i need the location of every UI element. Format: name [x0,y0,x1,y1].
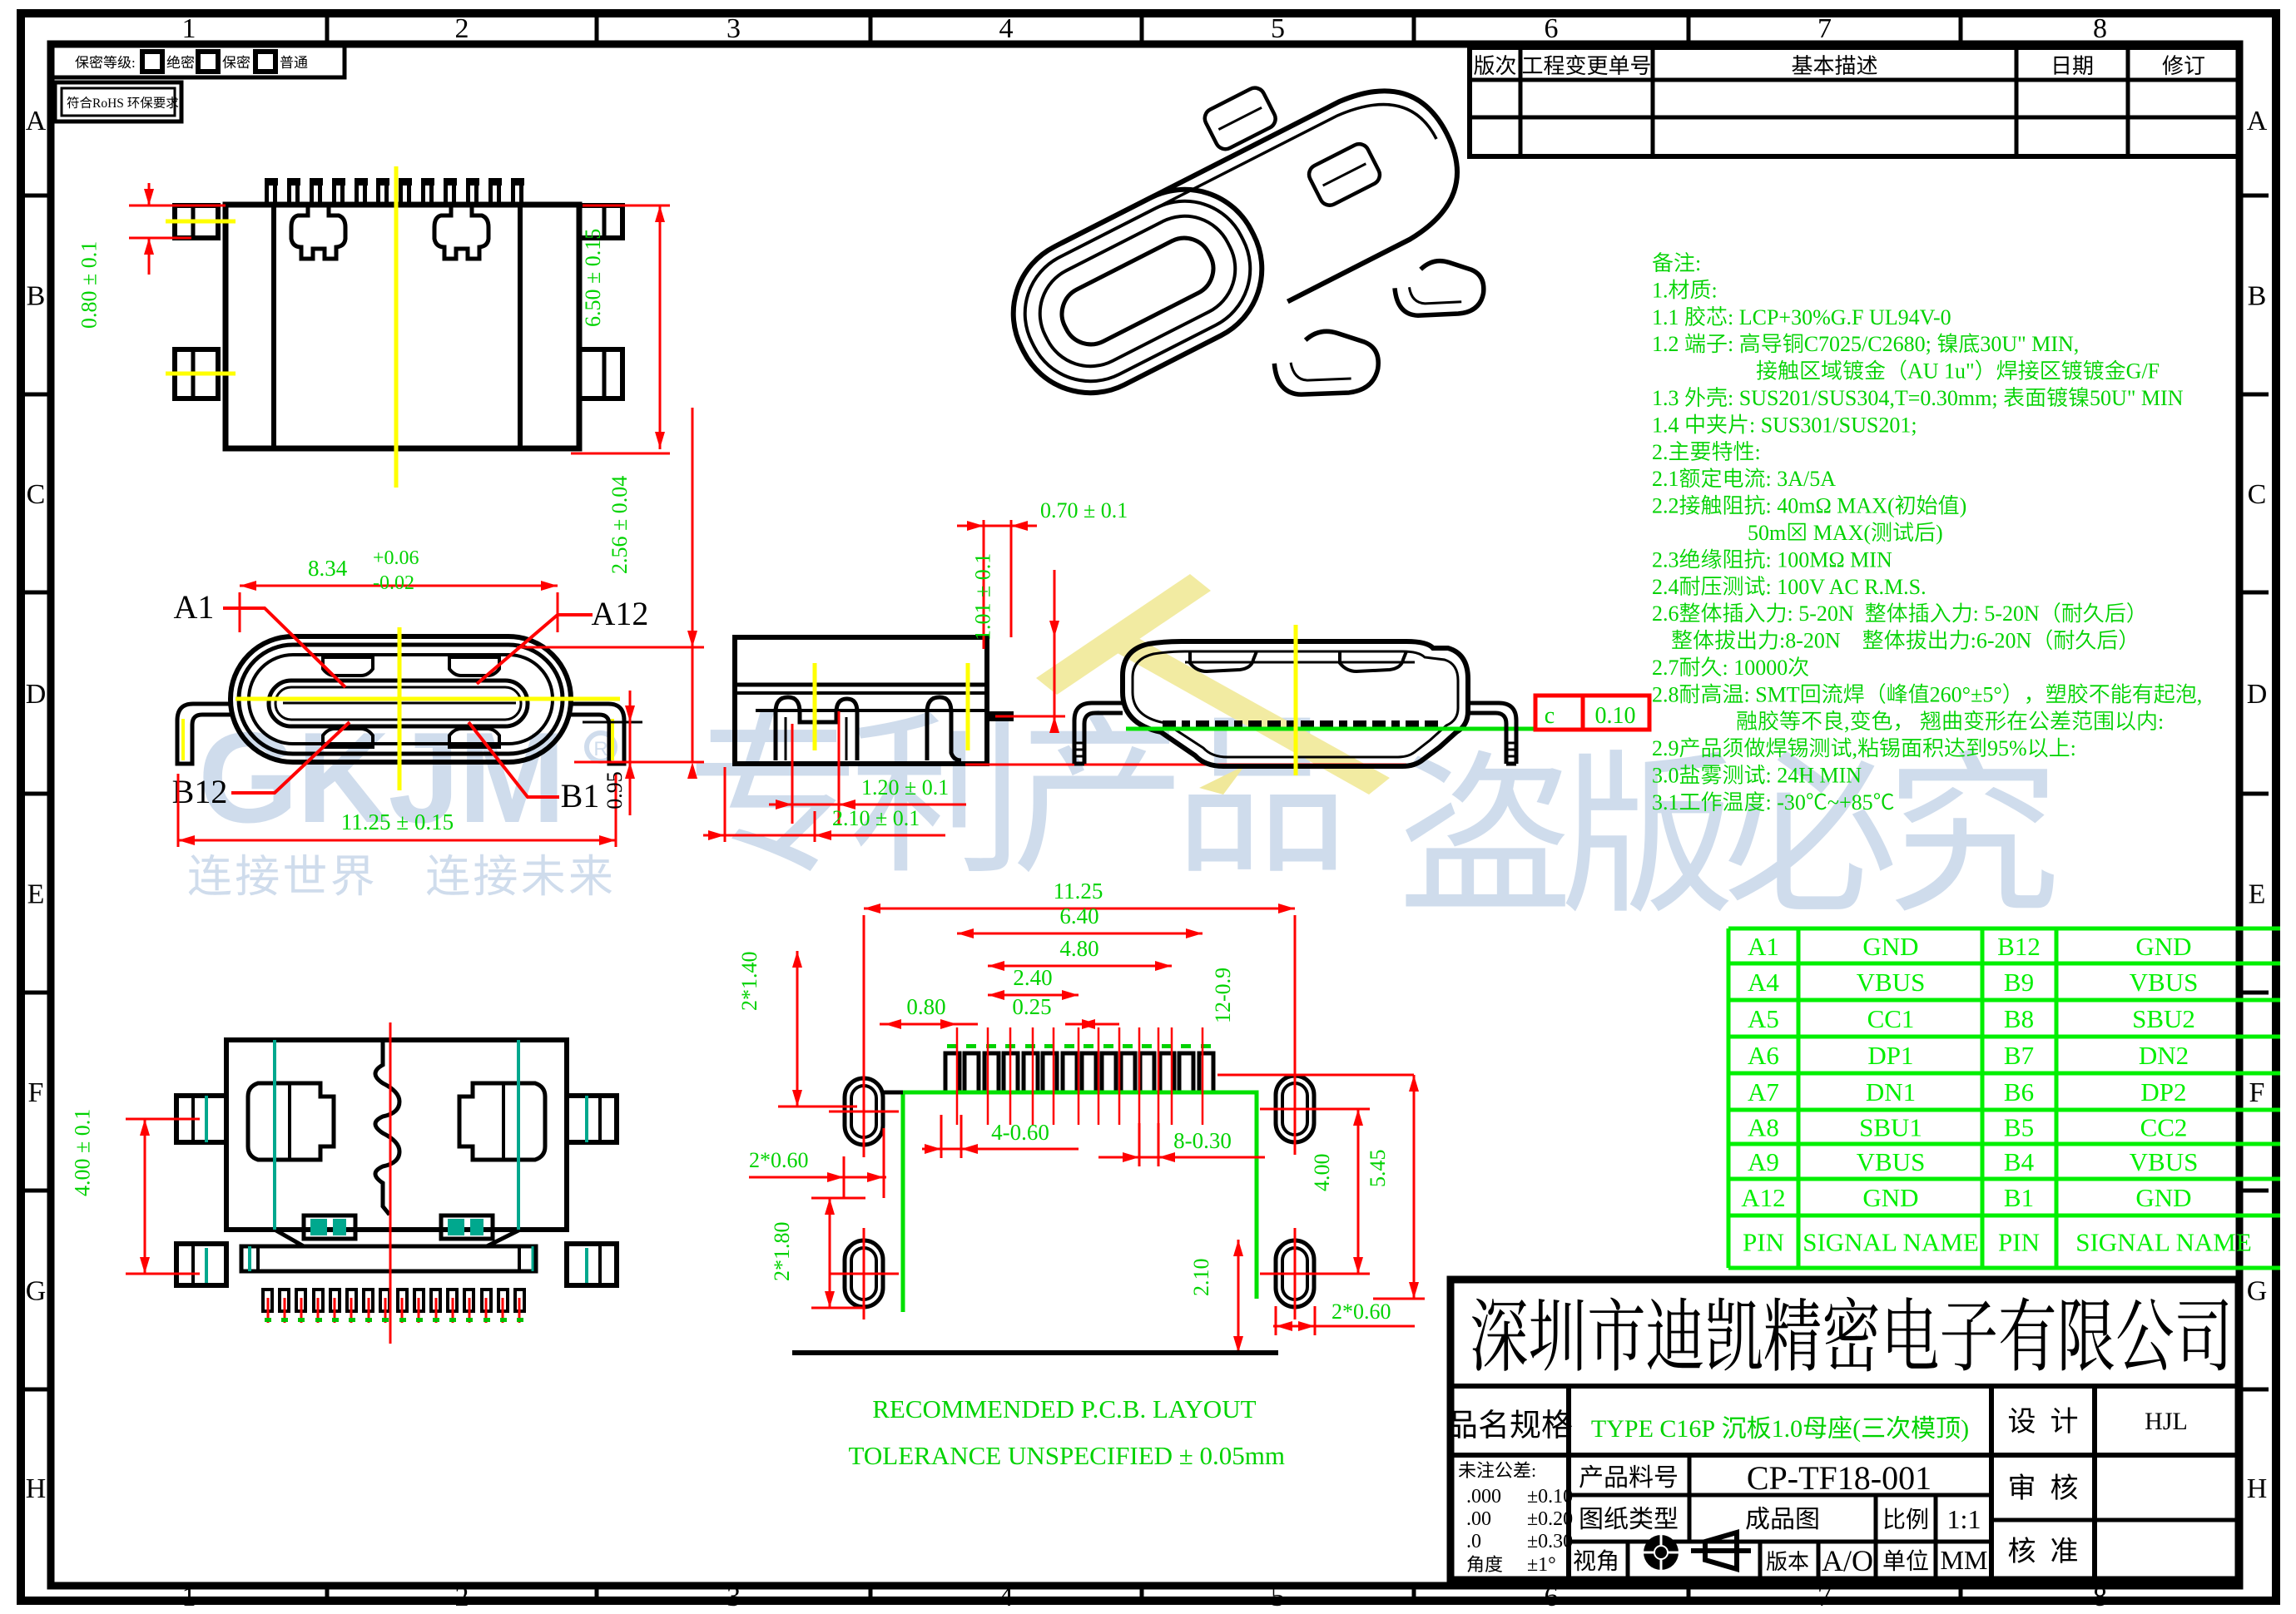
svg-text:: LCP+30%G.F UL94V-0: : LCP+30%G.F UL94V-0 [1728,305,1951,329]
svg-text:F: F [28,1077,44,1108]
svg-text:: 24H MIN: : 24H MIN [1766,764,1862,788]
svg-text:): ) [1936,521,1943,545]
svg-text:A1: A1 [174,588,215,626]
svg-text:D: D [26,679,47,710]
svg-text:B7: B7 [2004,1041,2034,1070]
svg-text:0.25: 0.25 [1012,994,1051,1019]
svg-text::: : [1755,440,1761,464]
svg-text:2.9: 2.9 [1652,736,1679,760]
svg-text:2.10: 2.10 [1189,1259,1213,1297]
svg-text:SBU2: SBU2 [2132,1004,2195,1033]
svg-text:8.34: 8.34 [308,556,348,581]
svg-text:E: E [2249,879,2266,910]
svg-text:11.25 ± 0.15: 11.25 ± 0.15 [341,809,454,834]
svg-text:HJL: HJL [2145,1408,2188,1435]
svg-text:A12: A12 [1741,1183,1785,1212]
svg-text:A4: A4 [1748,968,1779,997]
svg-text:: 40mΩ MAX(: : 40mΩ MAX( [1766,494,1895,518]
svg-text:SIGNAL NAME: SIGNAL NAME [1803,1228,1979,1257]
svg-text:2.2: 2.2 [1652,494,1679,518]
svg-text:0.80 ± 0.1: 0.80 ± 0.1 [77,241,101,329]
svg-text:D: D [2247,679,2268,710]
svg-text:2: 2 [455,13,469,44]
svg-text:A/O: A/O [1822,1544,1873,1577]
svg-text:2*0.60: 2*0.60 [1331,1300,1391,1324]
svg-text:4-0.60: 4-0.60 [991,1120,1049,1145]
svg-text:2*0.60: 2*0.60 [749,1148,809,1172]
svg-text:2.7: 2.7 [1652,656,1679,680]
svg-text:1: 1 [182,1582,196,1612]
svg-text:6.50 ± 0.15: 6.50 ± 0.15 [581,229,605,327]
svg-text:A12: A12 [592,595,649,632]
svg-text:5: 5 [1271,13,1285,44]
svg-text:: 3A/5A: : 3A/5A [1766,467,1837,491]
svg-text:3.0: 3.0 [1652,764,1679,788]
svg-text:.00: .00 [1466,1508,1491,1530]
svg-text:A8: A8 [1748,1113,1779,1142]
svg-text:DN2: DN2 [2139,1041,2189,1070]
svg-text:2.10 ± 0.1: 2.10 ± 0.1 [832,806,920,830]
svg-text:DP2: DP2 [2140,1077,2186,1107]
svg-text:TYPE C16P: TYPE C16P [1591,1415,1721,1443]
svg-text:G/F: G/F [2126,359,2160,384]
svg-text:2.3: 2.3 [1652,547,1679,572]
svg-text:1.4: 1.4 [1652,413,1684,437]
svg-text:±0.20: ±0.20 [1527,1508,1573,1530]
svg-text:A1: A1 [1748,932,1779,961]
svg-text:,: , [2197,682,2203,706]
svg-text:0.10: 0.10 [1595,703,1636,729]
svg-text::8-20N: :8-20N [1779,629,1862,653]
svg-text:3: 3 [726,13,741,44]
svg-text:E: E [27,879,45,910]
svg-text:H: H [26,1473,47,1504]
svg-text:MM: MM [1941,1545,1988,1575]
svg-text:B1: B1 [2004,1183,2034,1212]
svg-text:1.2: 1.2 [1652,332,1684,356]
svg-text:A5: A5 [1748,1004,1779,1033]
svg-text:: 5-20N: : 5-20N [1788,602,1865,626]
svg-text:A: A [26,106,47,136]
svg-text:8-0.30: 8-0.30 [1173,1128,1232,1153]
svg-text:8: 8 [2093,13,2107,44]
svg-text:: SUS201/SUS304,T=0.30mm;: : SUS201/SUS304,T=0.30mm; [1728,386,2003,410]
svg-text:2.1: 2.1 [1652,467,1679,491]
svg-text:A7: A7 [1748,1077,1779,1107]
svg-text:95%: 95% [1987,736,2027,760]
svg-text:GND: GND [1862,932,1918,961]
svg-text:4.00: 4.00 [1310,1154,1334,1192]
svg-text:1:1: 1:1 [1947,1504,1981,1534]
svg-text:2*1.40: 2*1.40 [737,952,761,1012]
svg-text:8: 8 [2093,1582,2107,1612]
svg-text:±0.30: ±0.30 [1527,1531,1573,1552]
svg-text:1.20 ± 0.1: 1.20 ± 0.1 [861,775,949,800]
svg-text:1.01 ± 0.1: 1.01 ± 0.1 [970,553,994,641]
svg-text:A: A [2247,106,2268,136]
svg-text:G: G [2247,1276,2268,1307]
svg-text:B8: B8 [2004,1004,2034,1033]
svg-text:3.1: 3.1 [1652,790,1679,814]
svg-text:C: C [27,479,46,510]
svg-text:A6: A6 [1748,1041,1779,1070]
svg-text:(: ( [1852,1415,1861,1443]
svg-text:C7025/C2680;: C7025/C2680; [1804,332,1937,356]
svg-text:: SMT: : SMT [1744,682,1800,706]
svg-text:R: R [593,738,607,760]
svg-text:2.40: 2.40 [1013,965,1052,990]
svg-text:5.45: 5.45 [1366,1150,1390,1188]
svg-text:B: B [2248,281,2267,312]
svg-text:-0.02: -0.02 [373,572,414,594]
svg-text:0.95: 0.95 [603,771,627,809]
svg-text:DN1: DN1 [1866,1077,1916,1107]
svg-text:H: H [2247,1473,2268,1504]
svg-text:.0: .0 [1466,1531,1481,1552]
svg-text:: 100MΩ MIN: : 100MΩ MIN [1766,547,1892,572]
svg-text:VBUS: VBUS [2130,1147,2199,1176]
svg-text:F: F [2249,1077,2265,1108]
svg-text:RECOMMENDED P.C.B. LAYOUT: RECOMMENDED P.C.B. LAYOUT [872,1394,1256,1423]
svg-text:50U" MIN: 50U" MIN [2090,386,2184,410]
svg-text:30U" MIN,: 30U" MIN, [1980,332,2079,356]
svg-text:1.3: 1.3 [1652,386,1684,410]
svg-text:2.8: 2.8 [1652,682,1679,706]
svg-text:11.25: 11.25 [1054,879,1103,904]
svg-text:G: G [26,1276,47,1307]
svg-text:2.: 2. [1652,440,1669,464]
svg-text::: : [1695,251,1701,275]
svg-text:: 10000: : 10000 [1723,656,1788,680]
svg-text:260°±5°: 260°±5° [1930,682,2002,706]
svg-text:B12: B12 [172,773,228,810]
svg-text:GND: GND [2135,1183,2191,1212]
svg-text:1.0: 1.0 [1772,1415,1803,1443]
svg-text:VBUS: VBUS [1857,968,1926,997]
svg-text:): ) [1961,1415,1969,1443]
svg-text:50m: 50m [1748,521,1786,545]
svg-text:VBUS: VBUS [2130,968,2199,997]
svg-text:2.56 ± 0.04: 2.56 ± 0.04 [607,476,632,574]
svg-text:1: 1 [182,13,196,44]
svg-text:SBU1: SBU1 [1859,1113,1922,1142]
svg-text:±1°: ±1° [1527,1554,1556,1576]
svg-text:2.6: 2.6 [1652,602,1679,626]
svg-text:,: , [1844,710,1850,734]
svg-text:A9: A9 [1748,1147,1779,1176]
svg-text:MAX(: MAX( [1808,521,1871,545]
svg-text:4.00 ± 0.1: 4.00 ± 0.1 [70,1109,94,1196]
svg-text:: SUS301/SUS201;: : SUS301/SUS201; [1749,413,1917,437]
svg-text::: : [1531,1460,1536,1481]
svg-text:1.: 1. [1652,278,1669,302]
svg-text:C: C [2248,479,2267,510]
svg-text:PIN: PIN [1743,1228,1784,1257]
svg-text:TOLERANCE UNSPECIFIED ± 0.05mm: TOLERANCE UNSPECIFIED ± 0.05mm [849,1441,1286,1470]
svg-text:VBUS: VBUS [1857,1147,1926,1176]
svg-text:): ) [1960,494,1967,518]
svg-text:7: 7 [1817,1582,1832,1612]
svg-text:B1: B1 [561,777,600,814]
svg-text:0.70 ± 0.1: 0.70 ± 0.1 [1040,498,1128,522]
svg-text:SIGNAL NAME: SIGNAL NAME [2075,1228,2252,1257]
svg-text::: : [1728,332,1739,356]
svg-text:: 5-20N: : 5-20N [1973,602,2040,626]
svg-text:6: 6 [1545,1582,1559,1612]
svg-text:7: 7 [1817,13,1832,44]
svg-text::: : [1712,278,1718,302]
svg-text:1.1: 1.1 [1652,305,1684,329]
svg-text:.000: .000 [1466,1486,1501,1508]
svg-text:c: c [1545,703,1555,729]
svg-text:5: 5 [1271,1582,1285,1612]
svg-text:,: , [1852,736,1858,760]
svg-text:B: B [27,281,46,312]
svg-text::: : [2070,736,2076,760]
svg-text:DP1: DP1 [1867,1041,1913,1070]
svg-text:0.80: 0.80 [906,994,945,1019]
svg-text:: 100V AC R.M.S.: : 100V AC R.M.S. [1766,575,1927,599]
svg-text::6-20N: :6-20N [1971,629,2032,653]
svg-text:12-0.9: 12-0.9 [1211,968,1235,1023]
svg-text:B9: B9 [2004,968,2034,997]
svg-text:6: 6 [1545,13,1559,44]
svg-text:6.40: 6.40 [1059,904,1098,928]
svg-text:±0.10: ±0.10 [1527,1486,1573,1508]
svg-text:B4: B4 [2004,1147,2035,1176]
svg-text:4: 4 [999,13,1014,44]
svg-text:B6: B6 [2004,1077,2034,1107]
svg-text:GND: GND [1862,1183,1918,1212]
svg-text:CP-TF18-001: CP-TF18-001 [1747,1459,1932,1497]
svg-text:~+85: ~+85 [1827,790,1873,814]
svg-text::: : [2158,710,2164,734]
svg-text::: : [131,55,136,71]
svg-text:2.4: 2.4 [1652,575,1679,599]
svg-text:PIN: PIN [1998,1228,2040,1257]
svg-text:B5: B5 [2004,1113,2034,1142]
svg-text:CC2: CC2 [2140,1113,2188,1142]
svg-text:: -30: : -30 [1766,790,1806,814]
svg-text:4.80: 4.80 [1059,936,1098,961]
svg-text:+0.06: +0.06 [373,547,419,569]
svg-text:4: 4 [999,1582,1014,1612]
svg-text:RoHS: RoHS [92,97,127,111]
svg-text:CC1: CC1 [1867,1004,1915,1033]
svg-text:AU 1u": AU 1u" [1907,359,1975,384]
svg-text:3: 3 [726,1582,741,1612]
svg-text:GND: GND [2135,932,2191,961]
svg-text:B12: B12 [1997,932,2041,961]
svg-text:2: 2 [455,1582,469,1612]
svg-text:2*1.80: 2*1.80 [770,1222,794,1282]
